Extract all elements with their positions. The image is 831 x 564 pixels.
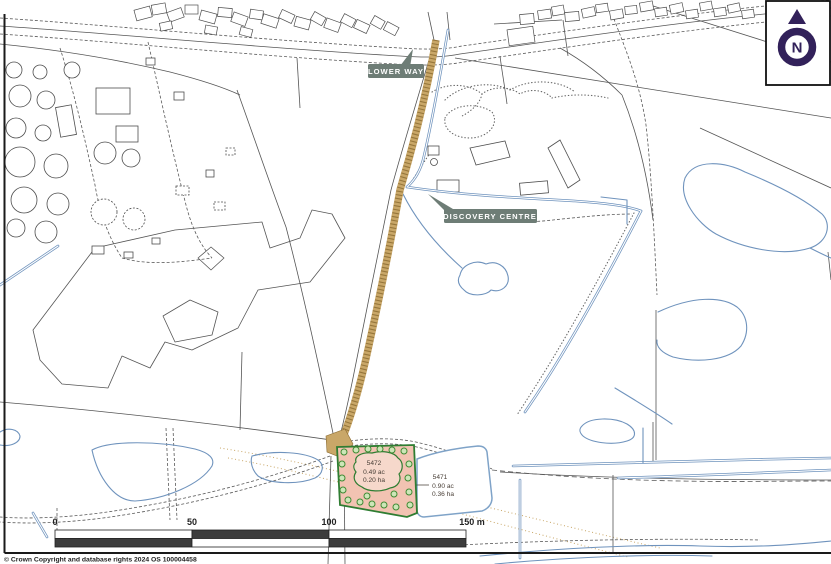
parcel-5472-id: 5472 <box>367 460 382 467</box>
discovery-centre-buildings <box>428 140 580 195</box>
housing-buildings <box>134 1 755 46</box>
map-canvas: 5471 0.90 ac 0.36 ha 5472 0.49 ac 0.20 h… <box>0 0 831 564</box>
footpaths-dotted <box>409 82 634 415</box>
scale-tick-0: 0 <box>52 517 57 527</box>
callout-discovery-centre-label: DISCOVERY CENTRE <box>443 212 537 221</box>
copyright-attribution: © Crown Copyright and database rights 20… <box>4 556 197 564</box>
parcel-5472-area-ac: 0.49 ac <box>363 469 385 476</box>
scale-tick-100: 100 <box>321 517 336 527</box>
parcel-5471-area-ha: 0.36 ha <box>432 491 454 498</box>
north-letter: N <box>792 40 803 57</box>
parcel-5471-boundary[interactable] <box>417 446 492 517</box>
north-arrow: N <box>766 1 830 85</box>
callout-lower-way: LOWER WAY <box>368 49 424 78</box>
scale-tick-150m: 150 m <box>459 517 485 527</box>
parcel-5471-area-ac: 0.90 ac <box>432 483 454 490</box>
scale-tick-50: 50 <box>187 517 197 527</box>
scale-bar: 0 50 100 150 m <box>52 517 484 547</box>
track-lower-way <box>326 40 436 458</box>
parcel-5472[interactable]: 5472 0.49 ac 0.20 ha <box>337 445 417 517</box>
parcel-5472-area-ha: 0.20 ha <box>363 477 385 484</box>
callout-lower-way-label: LOWER WAY <box>368 67 424 76</box>
site-plan-map: 5471 0.90 ac 0.36 ha 5472 0.49 ac 0.20 h… <box>0 0 831 564</box>
parcel-5471-id: 5471 <box>433 474 448 481</box>
